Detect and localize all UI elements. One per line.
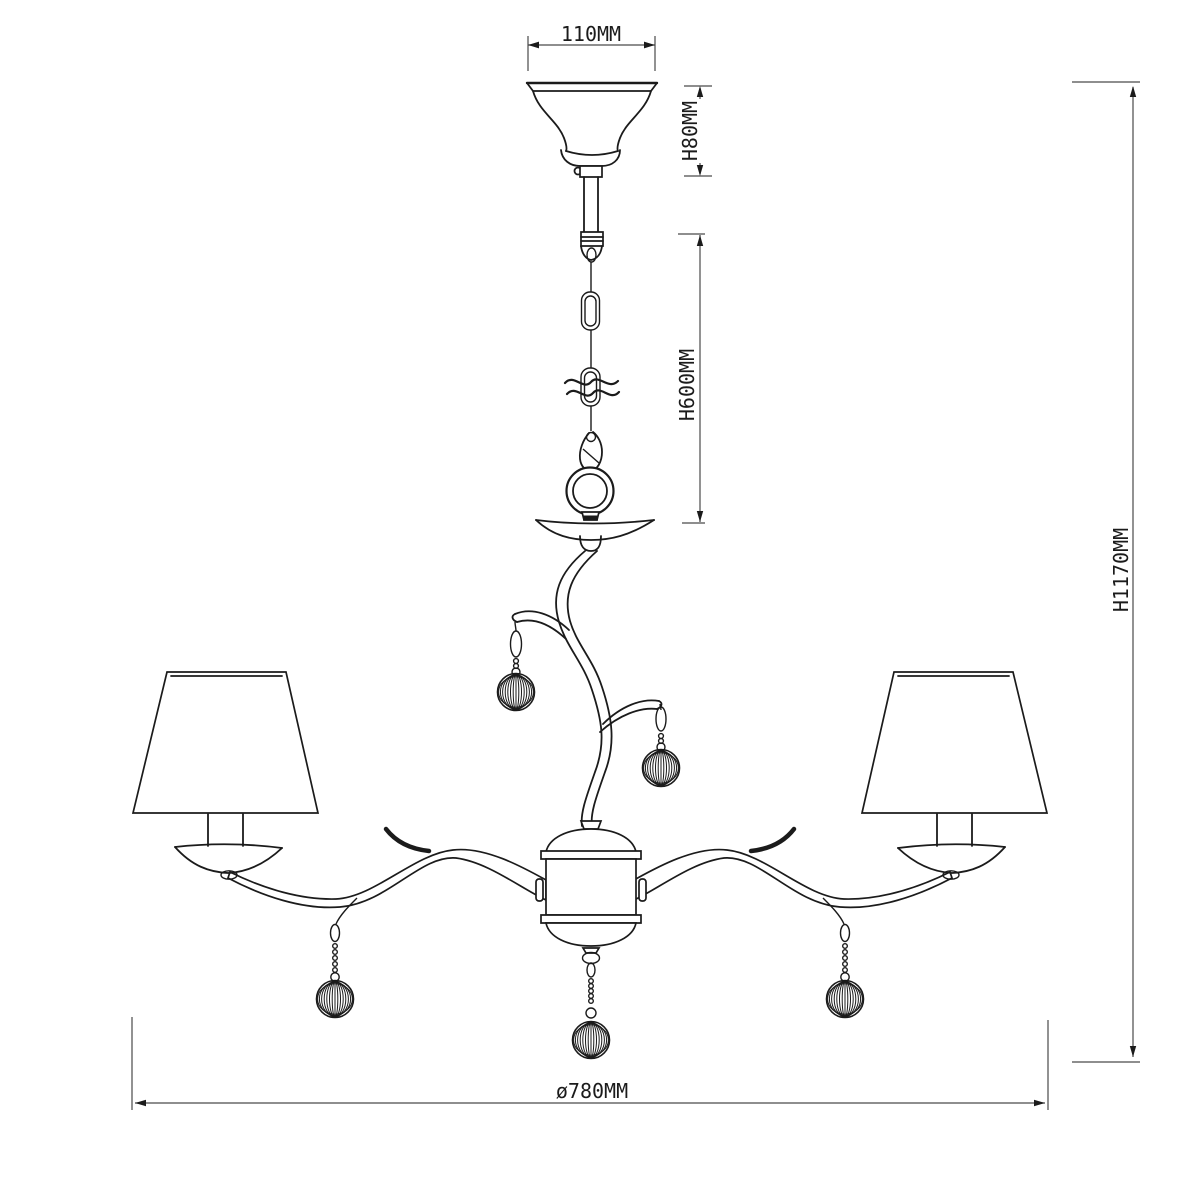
dim-canopy-height-label: H80MM — [678, 101, 702, 161]
suspension-chain — [581, 262, 600, 431]
dim-canopy-width: 110MM — [528, 22, 655, 71]
top-bobeche-dish — [536, 520, 654, 551]
arm-curl-left — [386, 829, 429, 851]
arm-bracket-right — [639, 879, 646, 901]
chain-break-symbol — [565, 379, 619, 395]
left-arm — [228, 850, 546, 908]
left-candle — [208, 814, 243, 846]
dim-total-height: H1170MM — [1072, 82, 1140, 1062]
branch-ornament-right — [643, 704, 680, 787]
left-shade — [133, 672, 318, 813]
dim-diameter-label: ø780MM — [556, 1079, 628, 1103]
carabiner-hook — [580, 432, 602, 471]
arm-curl-right — [751, 829, 794, 851]
dim-chain-length: H600MM — [675, 234, 705, 523]
dim-canopy-height: H80MM — [678, 86, 712, 176]
right-shade — [862, 672, 1047, 813]
suspension-stem — [584, 177, 598, 232]
center-body — [536, 829, 646, 946]
arm-ornament-right — [823, 898, 864, 1018]
arm-ornament-left — [317, 898, 358, 1018]
chandelier-technical-drawing: 110MM H80MM H600MM H1170MM ø780MM — [0, 0, 1200, 1200]
chain-coupling — [581, 232, 603, 262]
right-candle — [937, 814, 972, 846]
canopy-connector — [575, 166, 603, 177]
bottom-ornament — [573, 948, 610, 1059]
branch-ornament-left — [498, 622, 535, 711]
center-stem — [556, 551, 612, 829]
ring-collar — [582, 512, 599, 521]
dim-chain-length-label: H600MM — [675, 349, 699, 421]
hanging-ring — [567, 468, 614, 515]
drawing-canvas: 110MM H80MM H600MM H1170MM ø780MM — [0, 0, 1200, 1200]
arm-bracket-left — [536, 879, 543, 901]
canopy — [527, 83, 657, 177]
right-arm — [634, 850, 952, 908]
dim-canopy-width-label: 110MM — [561, 22, 621, 46]
dim-total-height-label: H1170MM — [1109, 528, 1133, 612]
